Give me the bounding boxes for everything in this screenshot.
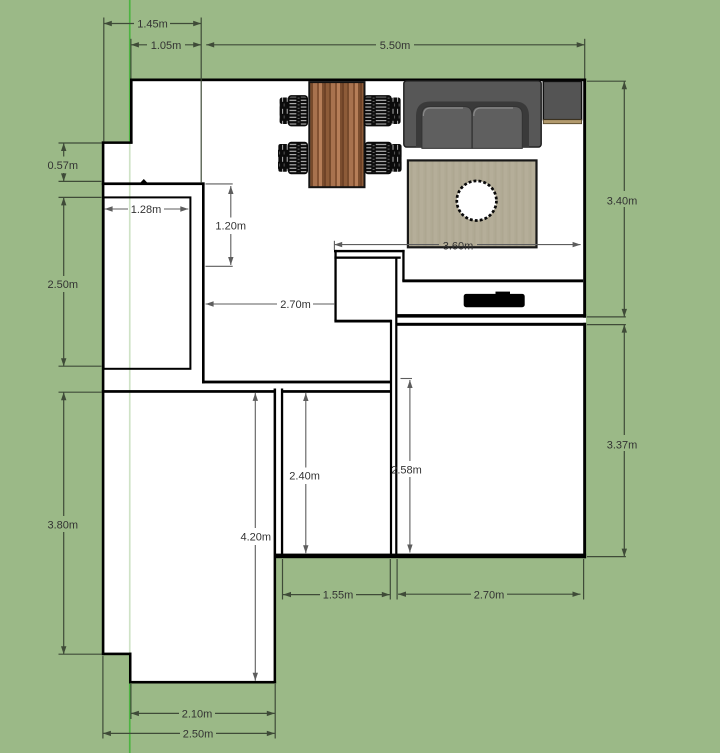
svg-text:2.40m: 2.40m	[289, 471, 320, 483]
svg-text:1.28m: 1.28m	[131, 204, 162, 216]
svg-text:1.20m: 1.20m	[215, 221, 246, 233]
svg-text:5.50m: 5.50m	[380, 40, 411, 52]
svg-text:1.55m: 1.55m	[323, 590, 354, 602]
svg-text:2.70m: 2.70m	[474, 589, 505, 601]
svg-text:2.58m: 2.58m	[391, 464, 422, 476]
svg-text:3.60m: 3.60m	[443, 241, 474, 253]
svg-text:1.45m: 1.45m	[137, 19, 168, 31]
svg-text:3.80m: 3.80m	[48, 520, 79, 532]
svg-text:2.10m: 2.10m	[182, 709, 213, 721]
svg-text:2.50m: 2.50m	[183, 729, 214, 741]
svg-text:2.70m: 2.70m	[280, 299, 311, 311]
svg-text:3.37m: 3.37m	[607, 440, 638, 452]
svg-text:4.20m: 4.20m	[241, 532, 272, 544]
svg-text:3.40m: 3.40m	[607, 196, 638, 208]
svg-text:2.50m: 2.50m	[48, 279, 79, 291]
svg-text:0.57m: 0.57m	[48, 160, 79, 172]
svg-text:1.05m: 1.05m	[151, 40, 182, 52]
